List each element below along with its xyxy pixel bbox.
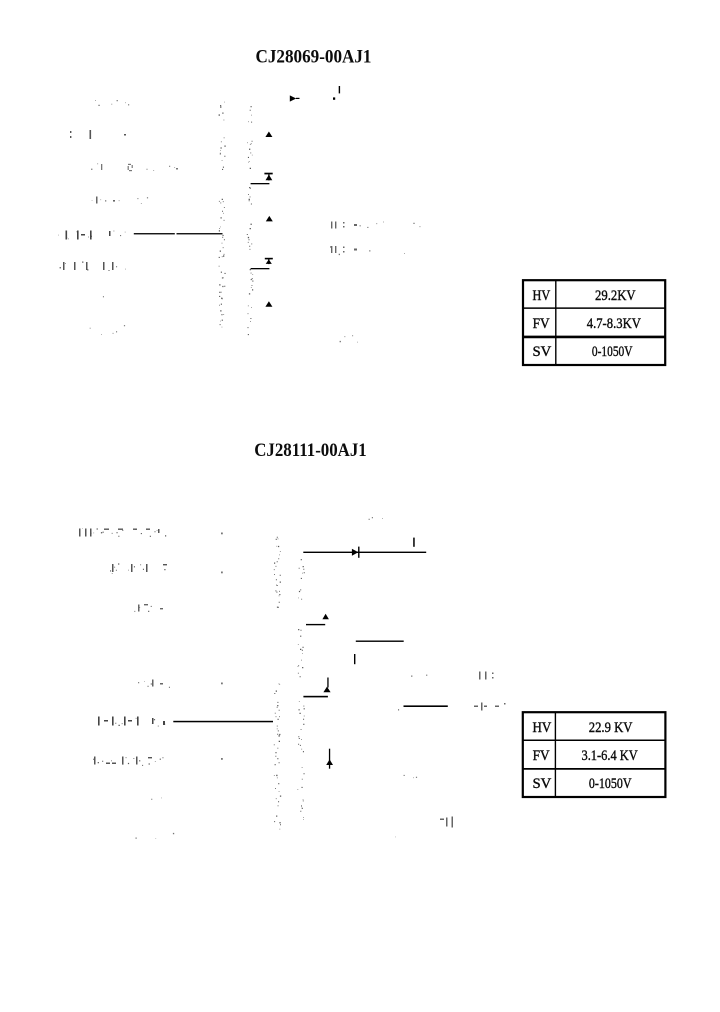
svg-text:CJ28111-00AJ1: CJ28111-00AJ1 (254, 440, 367, 461)
svg-text:0-1050V: 0-1050V (592, 343, 633, 360)
svg-text:HV: HV (533, 719, 552, 736)
svg-text:FV: FV (533, 747, 550, 764)
svg-text:0-1050V: 0-1050V (589, 775, 632, 792)
svg-text:SV: SV (533, 343, 552, 360)
svg-text:CJ28069-00AJ1: CJ28069-00AJ1 (256, 46, 372, 67)
svg-text:HV: HV (533, 287, 551, 304)
svg-text:SV: SV (533, 775, 552, 792)
svg-text:3.1-6.4 KV: 3.1-6.4 KV (582, 747, 638, 764)
svg-text:22.9 KV: 22.9 KV (589, 719, 633, 736)
svg-text:FV: FV (533, 315, 550, 332)
svg-text:4.7-8.3KV: 4.7-8.3KV (587, 315, 641, 332)
svg-text:29.2KV: 29.2KV (595, 287, 636, 304)
